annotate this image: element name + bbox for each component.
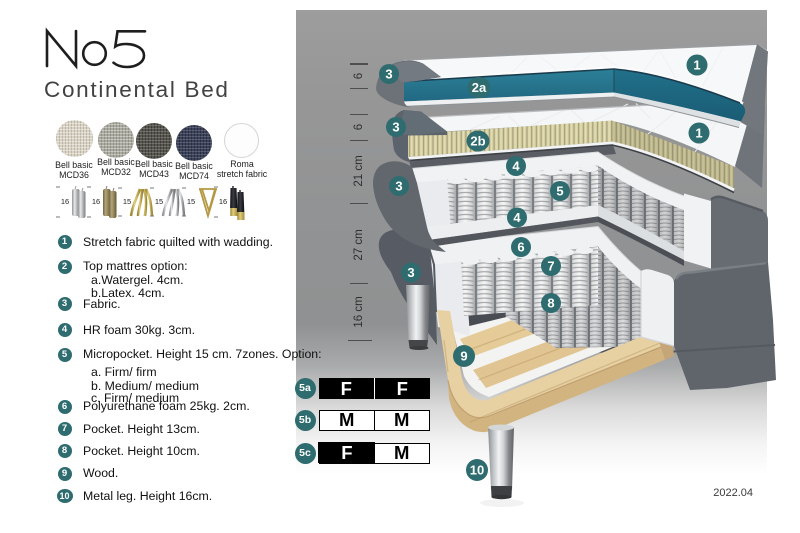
svg-text:7: 7 <box>547 259 554 274</box>
svg-text:1: 1 <box>693 58 700 73</box>
svg-text:3: 3 <box>407 265 414 280</box>
svg-text:2a: 2a <box>472 80 487 95</box>
svg-text:10: 10 <box>470 463 484 478</box>
svg-text:4: 4 <box>512 159 520 174</box>
svg-text:1: 1 <box>695 126 702 141</box>
svg-text:4: 4 <box>513 210 521 225</box>
svg-text:3: 3 <box>385 67 392 82</box>
svg-text:3: 3 <box>395 179 402 194</box>
svg-text:8: 8 <box>547 296 554 311</box>
svg-text:5: 5 <box>556 184 563 199</box>
svg-text:2b: 2b <box>470 134 485 149</box>
svg-text:9: 9 <box>460 349 467 364</box>
svg-text:6: 6 <box>517 240 524 255</box>
svg-text:3: 3 <box>392 120 399 135</box>
